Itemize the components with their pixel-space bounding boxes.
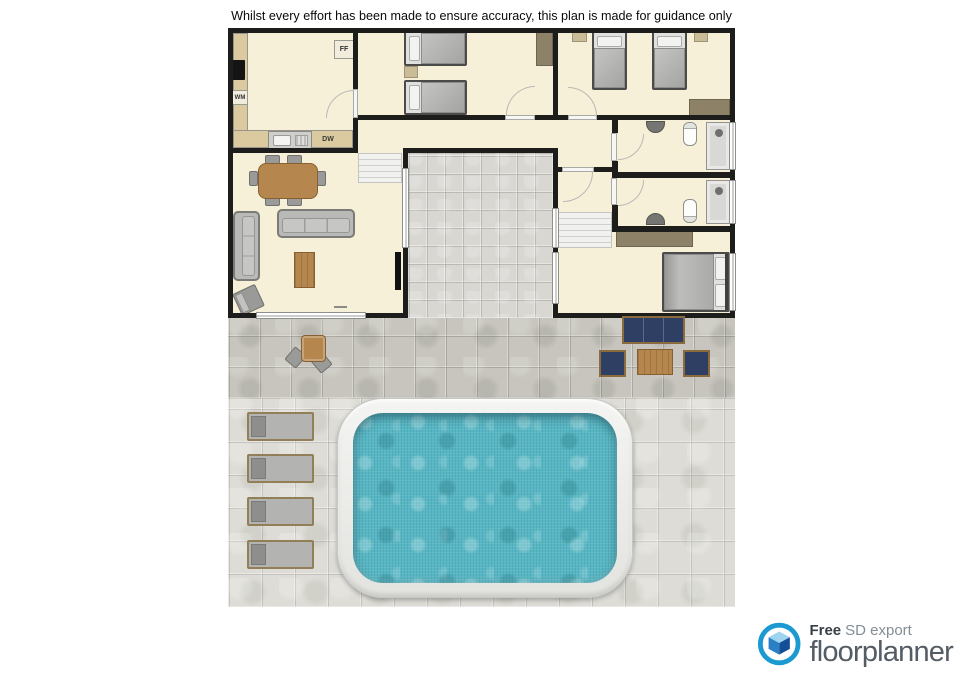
sink-bowl-icon: [273, 135, 291, 146]
twin-bed: [652, 31, 687, 90]
floorplanner-logo-icon: [757, 621, 801, 667]
kitchen-counter-left: [233, 33, 248, 143]
wall: [612, 205, 618, 226]
outdoor-armchair: [683, 350, 710, 377]
door-leaf: [611, 178, 617, 205]
window: [256, 312, 366, 319]
hob-icon: [232, 60, 245, 80]
window: [729, 180, 736, 224]
nightstand: [404, 66, 418, 78]
window: [402, 168, 409, 248]
floorplanner-logo: FreeSD export floorplanner: [757, 621, 953, 671]
blanket-icon: [421, 33, 465, 64]
outdoor-coffee-table: [637, 349, 673, 375]
shower-head-icon: [715, 187, 723, 195]
twin-bed: [404, 31, 467, 66]
wall: [594, 167, 613, 172]
window: [729, 253, 736, 311]
courtyard: [408, 153, 553, 318]
fridge-freezer: FF: [334, 40, 354, 59]
disclaimer-text: Whilst every effort has been made to ens…: [228, 9, 735, 25]
wall: [353, 118, 358, 153]
wall: [553, 28, 558, 115]
sun-lounger: [247, 540, 314, 569]
dining-chair: [249, 171, 258, 186]
lounger-backrest: [251, 458, 266, 479]
outdoor-sofa-cushions: [624, 318, 683, 342]
pillow-icon: [657, 36, 682, 47]
window: [729, 122, 736, 170]
wall: [228, 148, 358, 153]
window: [552, 208, 559, 248]
outdoor-armchair: [599, 350, 626, 377]
tv-icon: [395, 252, 401, 290]
sun-lounger: [247, 497, 314, 526]
wardrobe: [616, 231, 693, 247]
shower-head-icon: [715, 129, 723, 137]
blanket-icon: [654, 48, 685, 88]
twin-bed: [404, 80, 467, 115]
dining-chair: [317, 171, 326, 186]
wall: [353, 28, 358, 89]
door-leaf: [611, 133, 617, 161]
stairs-living: [358, 153, 402, 183]
floorplan-export-page: Whilst every effort has been made to ens…: [0, 0, 960, 679]
toilet-icon: [683, 122, 697, 146]
stairs-hall: [556, 212, 612, 248]
wall: [228, 28, 735, 33]
wardrobe: [689, 99, 730, 116]
headboard-icon: [725, 254, 728, 310]
lounger-backrest: [251, 544, 266, 565]
sofa-seat: [282, 218, 350, 233]
sofa-left: [233, 211, 260, 281]
wall: [612, 120, 618, 133]
shower-icon: [706, 122, 730, 170]
washing-machine: WM: [232, 90, 248, 105]
lounger-backrest: [251, 416, 266, 437]
pillow-icon: [409, 85, 420, 110]
wall: [228, 28, 233, 318]
bathroom-sink-icon: [646, 213, 665, 225]
toilet-icon: [683, 199, 697, 223]
wardrobe: [536, 30, 553, 66]
window: [552, 252, 559, 304]
blanket-icon: [594, 48, 625, 88]
wall: [403, 148, 558, 153]
double-bed: [662, 252, 730, 312]
sun-lounger: [247, 412, 314, 441]
toilet-tank: [684, 216, 696, 222]
sun-lounger: [247, 454, 314, 483]
duvet-icon: [664, 254, 714, 310]
sofa-seat: [242, 216, 255, 276]
twin-bed: [592, 31, 627, 90]
wall: [535, 115, 568, 120]
logo-brand-name: floorplanner: [809, 639, 953, 666]
wall: [612, 161, 618, 172]
drainer-icon: [295, 135, 308, 146]
door-leaf: [505, 115, 535, 120]
wall: [612, 226, 735, 232]
pillow-icon: [409, 36, 420, 61]
kitchen-sink-unit: [268, 131, 312, 149]
outdoor-sofa: [622, 316, 685, 344]
lounger-backrest: [251, 501, 266, 522]
pool-water: [353, 413, 617, 583]
shower-icon: [706, 180, 730, 224]
toilet-tank: [684, 123, 696, 129]
wall: [612, 172, 735, 178]
blanket-icon: [421, 82, 465, 113]
dishwasher: DW: [313, 132, 343, 147]
patio-table: [301, 335, 326, 362]
sofa: [277, 209, 355, 238]
wall: [358, 115, 505, 120]
dining-table: [258, 163, 318, 199]
swimming-pool: [337, 398, 633, 598]
pillow-icon: [597, 36, 622, 47]
threshold-marker: [334, 306, 347, 308]
coffee-table: [294, 252, 315, 288]
